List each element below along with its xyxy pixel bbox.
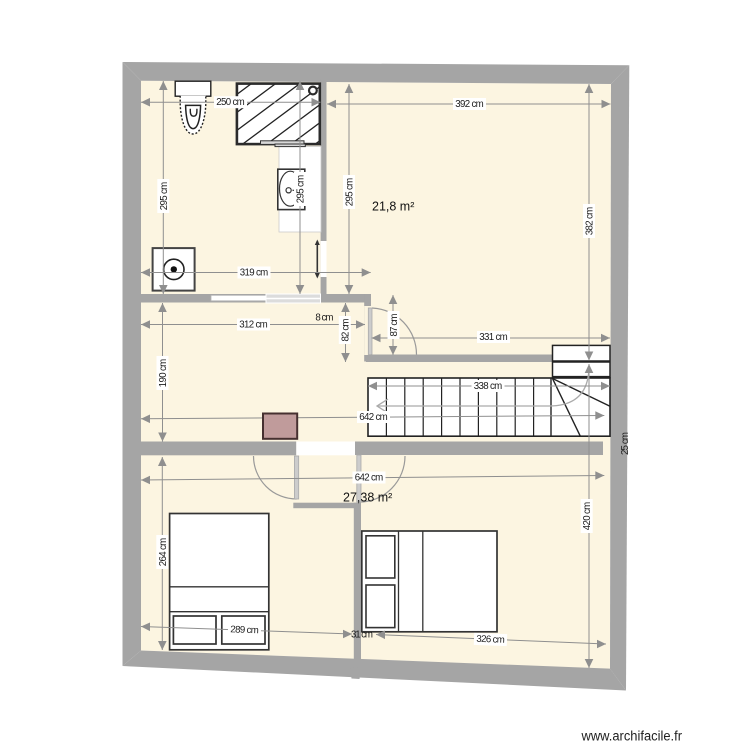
- svg-text:www.archifacile.fr: www.archifacile.fr: [581, 728, 683, 743]
- svg-text:420 cm: 420 cm: [582, 502, 593, 531]
- svg-text:87 cm: 87 cm: [389, 314, 400, 337]
- svg-text:331 cm: 331 cm: [479, 332, 508, 343]
- svg-text:295 cm: 295 cm: [296, 175, 307, 204]
- svg-text:31 cm: 31 cm: [351, 630, 373, 641]
- svg-text:21,8 m²: 21,8 m²: [372, 200, 414, 214]
- svg-text:642 cm: 642 cm: [355, 472, 384, 483]
- svg-text:319 cm: 319 cm: [240, 267, 269, 278]
- svg-text:642 cm: 642 cm: [359, 412, 388, 423]
- svg-text:25 cm: 25 cm: [620, 432, 631, 455]
- svg-text:250 cm: 250 cm: [216, 97, 245, 108]
- svg-text:312 cm: 312 cm: [239, 319, 268, 330]
- svg-text:295 cm: 295 cm: [345, 178, 356, 207]
- svg-text:382 cm: 382 cm: [585, 207, 596, 236]
- svg-text:27,38 m²: 27,38 m²: [343, 491, 392, 505]
- svg-text:82 cm: 82 cm: [340, 319, 351, 342]
- svg-text:326 cm: 326 cm: [476, 634, 505, 646]
- svg-text:289 cm: 289 cm: [230, 624, 259, 636]
- svg-text:338 cm: 338 cm: [474, 381, 503, 392]
- svg-text:190 cm: 190 cm: [158, 359, 169, 388]
- svg-text:8 cm: 8 cm: [315, 313, 333, 324]
- svg-text:392 cm: 392 cm: [455, 99, 484, 110]
- svg-text:295 cm: 295 cm: [159, 182, 170, 211]
- svg-text:264 cm: 264 cm: [158, 538, 169, 567]
